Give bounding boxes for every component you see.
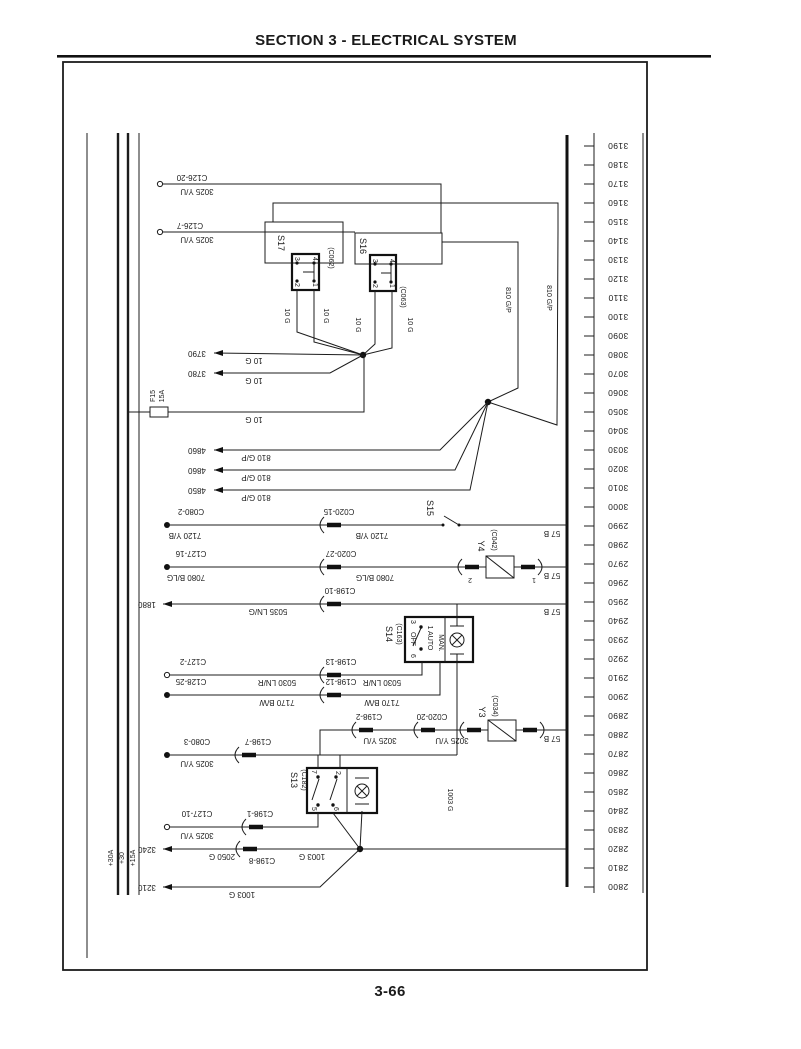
component-id: Y3	[477, 706, 487, 717]
wire-label: 7120 Y/B	[356, 531, 389, 540]
position-label: OFF	[409, 632, 416, 646]
grid-tick: 2950	[608, 597, 629, 607]
connector-label: C020-20	[416, 712, 447, 721]
wire-label: 810 G/P	[241, 453, 270, 462]
wire-label: 1003 G	[299, 852, 325, 861]
wire-label: 2050 G	[209, 852, 235, 861]
grid-tick: 2800	[608, 882, 629, 892]
wire-label: 3025 Y/U	[363, 736, 396, 745]
wire-label: 3025 Y/U	[435, 736, 468, 745]
connector-label: C198-8	[248, 856, 275, 865]
wire-label: 7170 B/W	[259, 698, 295, 707]
grid-tick: 2880	[608, 730, 629, 740]
ref-label: 3210	[138, 883, 156, 892]
grid-tick: 3100	[608, 312, 629, 322]
wire-label: 57 B	[544, 529, 560, 538]
grid-tick: 2990	[608, 521, 629, 531]
position-label: 1 AUTO	[426, 626, 433, 651]
wire-label: 10 G	[245, 376, 262, 385]
wire-label: 5030 LN/R	[258, 678, 296, 687]
connector-label: C128-25	[175, 677, 206, 686]
grid-tick: 3090	[608, 331, 629, 341]
grid-tick: 3050	[608, 407, 629, 417]
connector-label: C127-10	[181, 809, 212, 818]
wire-label: 10 G	[354, 317, 361, 332]
wire-label: 3025 Y/U	[180, 831, 213, 840]
relay-y3-row: C198-2 C020-20 3025 Y/U 3025 Y/U Y3 (C03…	[320, 695, 567, 755]
wire-label: 57 B	[544, 571, 560, 580]
grid-tick: 2900	[608, 692, 629, 702]
fuse-name: F15	[150, 390, 157, 402]
wire-label: 5035 LN/G	[249, 607, 288, 616]
grid-tick: 3130	[608, 255, 629, 265]
ref-label: 3790	[188, 349, 206, 358]
grid-tick: 3030	[608, 445, 629, 455]
wire-label: 3025 Y/U	[180, 759, 213, 768]
wire-label: 810 G/P	[545, 285, 552, 311]
ref-label: 4860	[188, 466, 206, 475]
ref-1880-row: 1880 5035 LN/G C198-10 57 B	[138, 586, 567, 616]
grid-tick: 3160	[608, 198, 629, 208]
wire-label: 57 B	[544, 734, 560, 743]
connector-label: C198-13	[325, 657, 356, 666]
switch-s15-row: C080-2 7120 Y/B C020-15 7120 Y/B S15 57 …	[164, 500, 567, 540]
grid-tick: 2970	[608, 559, 629, 569]
component-connector: (C034)	[491, 695, 498, 716]
wire-label: 10 G	[406, 317, 413, 332]
grid-tick: 2850	[608, 787, 629, 797]
grid-tick: 2810	[608, 863, 629, 873]
grid-tick: 3000	[608, 502, 629, 512]
position-label: 6	[409, 654, 416, 658]
grid-tick-marks	[584, 146, 594, 887]
wire-c127-10-row: C127-10 3025 Y/U C198-1	[164, 809, 318, 840]
position-label: 3	[409, 620, 416, 624]
terminal-label: 3	[293, 257, 300, 261]
schematic-canvas: SECTION 3 - ELECTRICAL SYSTEM 3-66 +30A …	[0, 0, 801, 1049]
connector-label: C198-10	[324, 586, 355, 595]
connector-label: C198-7	[244, 737, 271, 746]
power-bus-lines	[87, 133, 139, 958]
grid-tick: 2960	[608, 578, 629, 588]
grid-tick: 2830	[608, 825, 629, 835]
component-connector: (C062)	[327, 247, 334, 268]
grid-tick: 3070	[608, 369, 629, 379]
grid-tick: 2820	[608, 844, 629, 854]
grid-tick: 3040	[608, 426, 629, 436]
grid-tick: 3020	[608, 464, 629, 474]
bus-label-30a: +30A	[108, 849, 115, 866]
wire-label: 10 G	[245, 356, 262, 365]
wire-label: 5030 LN/R	[363, 678, 401, 687]
wire-label: 10 G	[322, 308, 329, 323]
connector-label: C020-27	[325, 549, 356, 558]
ref-label: 3240	[138, 845, 156, 854]
grid-tick: 3110	[608, 293, 628, 303]
manual-page: SECTION 3 - ELECTRICAL SYSTEM 3-66 +30A …	[0, 0, 801, 1049]
grid-tick: 3180	[608, 160, 629, 170]
component-id: S16	[358, 238, 368, 254]
ref-label: 1880	[138, 600, 156, 609]
terminal-label: 1	[311, 283, 318, 287]
ref-3780-row: 3780 10 G	[188, 355, 363, 385]
wire-label: 10 G	[283, 308, 290, 323]
terminal-label: 4	[388, 259, 395, 263]
component-id: Y4	[476, 540, 486, 551]
wire-c126-7: C126-7 3025 Y/U	[157, 221, 355, 244]
connector-label: C080-2	[177, 507, 204, 516]
component-connector: (C163)	[395, 623, 402, 644]
terminal-label: 2	[371, 284, 378, 288]
wire-10g-network: 10 G 10 G 10 G 10 G	[283, 290, 413, 358]
ref-label: 4850	[188, 486, 206, 495]
grid-tick: 3140	[608, 236, 629, 246]
terminal-label: 2	[293, 283, 300, 287]
grid-tick: 2940	[608, 616, 629, 626]
connector-label: C198-2	[355, 712, 382, 721]
grid-tick: 3170	[608, 179, 629, 189]
ref-3790-row: 3790 10 G	[188, 349, 363, 365]
bus-label-15a: +15A	[130, 849, 137, 866]
wire-label: 810 G/P	[504, 287, 511, 313]
wire-c080-3-row: C080-3 3025 Y/U C198-7	[164, 737, 457, 768]
component-connector: (C042)	[490, 529, 497, 550]
connector-label: C126-20	[176, 173, 207, 182]
position-label: MAN.	[437, 634, 444, 652]
switch-s13: S13 (C182) 7 2 5 6	[289, 755, 377, 813]
grid-tick: 2840	[608, 806, 629, 816]
ref-4860-row-1: 4860 810 G/P	[188, 402, 488, 462]
ref-3210-row: 3210 1003 G	[138, 849, 360, 899]
terminal-label: 1	[532, 576, 536, 583]
grid-tick: 3120	[608, 274, 629, 284]
terminal-label: 7	[310, 770, 317, 774]
grid-tick-labels: 3190 3180 3170 3160 3150 3140 3130 3120 …	[608, 141, 629, 892]
terminal-label: 5	[310, 807, 317, 811]
wire-label: 3025 Y/U	[180, 235, 213, 244]
grid-tick: 3010	[608, 483, 629, 493]
connector-label: C198-1	[246, 809, 273, 818]
wire-label: 1003 G	[229, 890, 255, 899]
connector-label: C020-15	[323, 507, 354, 516]
component-connector: (C063)	[399, 286, 406, 307]
grid-tick: 2870	[608, 749, 629, 759]
component-id: S14	[384, 626, 394, 642]
grid-tick: 2980	[608, 540, 629, 550]
grid-tick: 3150	[608, 217, 629, 227]
grid-tick: 3190	[608, 141, 629, 151]
component-id: S13	[289, 772, 299, 788]
page-title: SECTION 3 - ELECTRICAL SYSTEM	[255, 32, 517, 49]
grid-tick: 2860	[608, 768, 629, 778]
wire-label: 1003 G	[446, 789, 453, 812]
terminal-label: 4	[311, 257, 318, 261]
wire-label: 3025 Y/U	[180, 187, 213, 196]
component-connector: (C182)	[300, 769, 307, 790]
terminal-label: 1	[388, 284, 395, 288]
connector-label: C127-2	[179, 657, 206, 666]
ref-4860-row-2: 4860 810 G/P	[188, 402, 488, 482]
terminal-label: 3	[371, 259, 378, 263]
connector-label: C080-3	[183, 737, 210, 746]
title-underline	[57, 55, 711, 58]
component-id: S15	[425, 500, 435, 516]
fuse-rating: 15A	[159, 389, 166, 402]
connector-label: C126-7	[176, 221, 203, 230]
wire-label: 10 G	[245, 415, 262, 424]
connector-label: C198-12	[325, 677, 356, 686]
ref-label: 4860	[188, 446, 206, 455]
ref-4850-row: 4850 810 G/P	[188, 402, 488, 502]
page-number: 3-66	[374, 983, 405, 1000]
grid-tick: 2920	[608, 654, 629, 664]
grid-tick: 3080	[608, 350, 629, 360]
bus-label-30: +30	[119, 852, 126, 864]
terminal-label: 2	[468, 576, 472, 583]
wire-810gp-network: 810 G/P 810 G/P	[273, 203, 558, 425]
grid-tick: 2910	[608, 673, 629, 683]
grid-tick: 3060	[608, 388, 629, 398]
wire-label: 7080 B/LG	[167, 573, 205, 582]
ref-label: 3780	[188, 369, 206, 378]
terminal-label: 2	[334, 771, 341, 775]
wire-label: 7170 B/W	[364, 698, 400, 707]
wire-label: 810 G/P	[241, 493, 270, 502]
connector-label: C127-16	[175, 549, 206, 558]
component-id: S17	[276, 235, 286, 251]
grid-tick: 2890	[608, 711, 629, 721]
terminal-label: 6	[332, 807, 339, 811]
switch-s16: S16 (C063) 3 4 2 1	[355, 233, 442, 308]
grid-rails	[567, 133, 643, 893]
wire-label: 7120 Y/B	[169, 531, 202, 540]
wire-label: 810 G/P	[241, 473, 270, 482]
wire-label: 57 B	[544, 607, 560, 616]
grid-tick: 2930	[608, 635, 629, 645]
wire-label: 7080 B/LG	[356, 573, 394, 582]
